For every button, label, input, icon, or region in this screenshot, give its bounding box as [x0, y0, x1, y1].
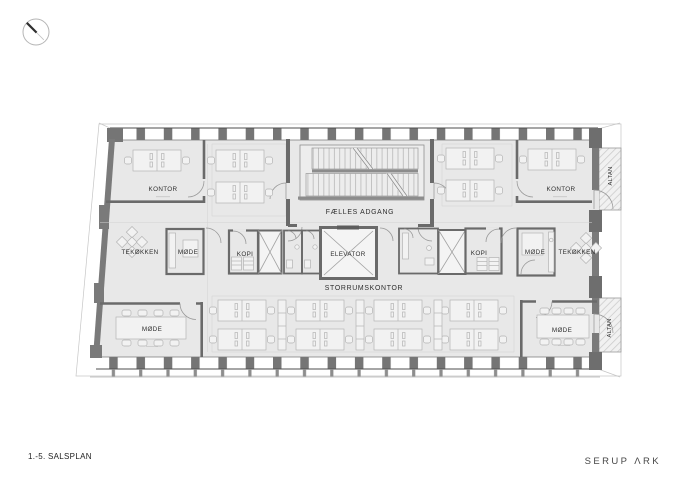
copier: [477, 258, 487, 271]
elevator-door: [337, 226, 359, 230]
exterior-wall-bottom: [90, 357, 600, 377]
copier: [489, 258, 499, 271]
desk-cluster: [125, 150, 190, 171]
stairs: [298, 145, 424, 200]
desk-cluster: [520, 149, 585, 170]
room-label-kopi-left: KOPI: [237, 251, 253, 258]
room-label-elevator: ELEVATOR: [330, 251, 365, 258]
exterior-wall-top: [107, 128, 598, 142]
room-label-kontor-right: KONTOR: [547, 186, 576, 193]
floor-plan-sheet: KONTOR KONTOR FÆLLES ADGANG TEKØKKEN MØD…: [0, 0, 687, 485]
room-label-altan-top: ALTAN: [608, 167, 614, 186]
room-label-kontor-left: KONTOR: [149, 186, 178, 193]
room-label-storrumskontor: STORRUMSKONTOR: [325, 285, 403, 292]
desk-cluster: [208, 150, 273, 171]
copier: [232, 257, 242, 270]
room-label-mode-bottom-left: MØDE: [142, 326, 162, 333]
firm-logo: SERUP ΛRK: [585, 456, 661, 467]
shaft: [439, 230, 466, 274]
copier: [244, 257, 254, 270]
room-label-tekokken-right: TEKØKKEN: [558, 249, 595, 256]
floor-plan-drawing: KONTOR KONTOR FÆLLES ADGANG TEKØKKEN MØD…: [0, 0, 687, 485]
room-label-tekokken-left: TEKØKKEN: [121, 249, 158, 256]
room-label-altan-bottom: ALTAN: [607, 319, 613, 338]
shelving-unit: [356, 300, 364, 350]
desk-cluster: [208, 182, 273, 203]
north-compass-icon: [23, 19, 49, 45]
room-label-mode-core-right: MØDE: [525, 249, 545, 256]
shelving-unit: [434, 300, 442, 350]
drawing-title: 1.-5. SALSPLAN: [28, 452, 92, 461]
room-label-kopi-right: KOPI: [471, 250, 487, 257]
room-label-mode-core-left: MØDE: [178, 249, 198, 256]
shaft: [259, 231, 282, 274]
room-label-faelles-adgang: FÆLLES ADGANG: [326, 209, 394, 216]
shelving-unit: [278, 300, 286, 350]
desk-cluster: [438, 148, 503, 169]
room-label-mode-bottom-right: MØDE: [552, 327, 572, 334]
desk-cluster: [438, 180, 503, 201]
